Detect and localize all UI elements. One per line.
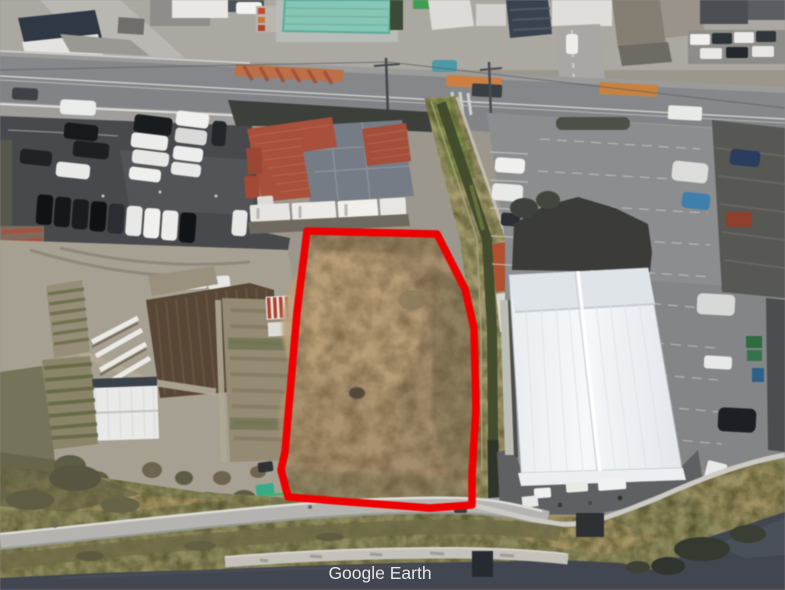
svg-text:Google Earth: Google Earth: [328, 563, 431, 583]
